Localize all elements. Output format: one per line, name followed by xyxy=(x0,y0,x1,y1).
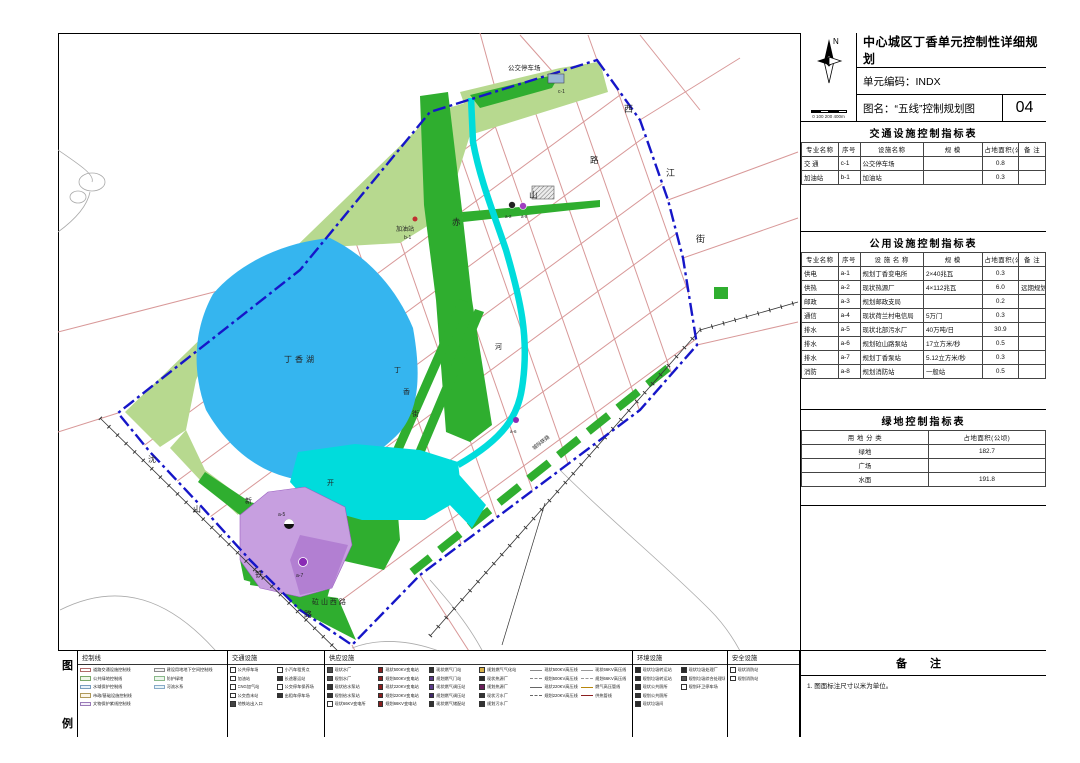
legend-item: 规划500KV变电站 xyxy=(378,676,427,682)
table-header-cell: 序号 xyxy=(838,143,860,157)
legend-item: 规划垃圾综合处理场 xyxy=(681,676,725,682)
legend-facility-icon xyxy=(327,676,333,682)
legend-item-label: 规划消防站 xyxy=(738,676,759,682)
table-header-cell: 设施名称 xyxy=(860,143,923,157)
legend-item-label: 现状66KV变电所 xyxy=(335,701,366,707)
remarks-section: 备 注 1. 图面标注尺寸以米为单位。 xyxy=(801,651,1046,737)
legend-item: 现状燃气储配站 xyxy=(429,701,478,707)
legend-line-icon xyxy=(530,670,542,671)
table-cell: 0.8 xyxy=(982,157,1019,171)
table-cell: 现状荷兰村电信局 xyxy=(860,309,923,323)
table-cell xyxy=(1019,323,1046,337)
table-row: 供热a-2现状热源厂4×112兆瓦6.0远期规划保留 xyxy=(802,281,1046,295)
table-row: 水面191.8 xyxy=(802,473,1046,487)
legend-facility-icon xyxy=(230,676,236,682)
table-header-cell: 序号 xyxy=(838,253,860,267)
table-cell xyxy=(1019,337,1046,351)
table-cell: 加油站 xyxy=(860,171,923,185)
table-cell: 规划消防站 xyxy=(860,365,923,379)
legend-item: 公交首末站 xyxy=(230,693,275,699)
table-cell: 邮政 xyxy=(802,295,839,309)
traffic-table: 专业名称序号设施名称规 模占地面积(公顷)备 注 交 通c-1公交停车场0.8加… xyxy=(801,142,1046,185)
legend-facility-icon xyxy=(327,693,333,699)
green-table-section: 绿地控制指标表 用 地 分 类占地面积(公顷) 绿地182.7广场水面191.8 xyxy=(801,410,1046,506)
panel-spacer xyxy=(801,506,1046,651)
table-row: 排水a-7规划丁香泵站5.12立方米/秒0.3 xyxy=(802,351,1046,365)
legend-facility-icon xyxy=(230,667,236,673)
unit-code: 单元编码：INDX xyxy=(863,74,941,89)
public-table-title: 公用设施控制指标表 xyxy=(801,232,1046,252)
legend-item-label: 现状燃气储配站 xyxy=(436,701,465,707)
table-cell: 规划丁香泵站 xyxy=(860,351,923,365)
railway-label: 铁 xyxy=(255,569,263,579)
legend-item-label: 现状500KV变电站 xyxy=(385,667,419,673)
table-cell: 30.9 xyxy=(982,323,1019,337)
table-cell: a-5 xyxy=(838,323,860,337)
table-cell: 0.2 xyxy=(982,295,1019,309)
map-label: a-5 xyxy=(278,512,285,518)
table-cell: 0.3 xyxy=(982,267,1019,281)
table-header-cell: 备 注 xyxy=(1019,143,1046,157)
legend-line-icon xyxy=(581,687,593,688)
table-cell: 182.7 xyxy=(928,445,1045,459)
legend-item: CNG加气站 xyxy=(230,684,275,690)
table-cell: 现状北部污水厂 xyxy=(860,323,923,337)
table-cell xyxy=(1019,351,1046,365)
table-cell xyxy=(1019,267,1046,281)
legend-section: 供应设施现状水厂规划水厂现状给水泵站规划给水泵站现状66KV变电所现状500KV… xyxy=(325,651,633,737)
legend-facility-icon xyxy=(479,684,485,690)
table-cell: 供电 xyxy=(802,267,839,281)
legend-item: 现状燃气调压站 xyxy=(429,684,478,690)
legend-item: 规划220KV高压线 xyxy=(530,693,579,699)
legend-item: 地铁站出入口 xyxy=(230,701,275,707)
table-cell: 0.3 xyxy=(982,171,1019,185)
bus-depot-icon xyxy=(548,74,564,83)
table-header-cell: 用 地 分 类 xyxy=(802,431,929,445)
table-cell: 规划砬山路泵站 xyxy=(860,337,923,351)
table-cell: 排水 xyxy=(802,337,839,351)
legend-section: 安全设施现状消防站规划消防站 xyxy=(728,651,800,737)
legend-item-label: 加油站 xyxy=(238,676,251,682)
table-cell: 5万门 xyxy=(923,309,982,323)
title-and-tables-panel: N 0 100 200 400m 中心城区丁香单元控制性详细规划 单元编码：IN… xyxy=(800,33,1046,737)
legend-line-icon xyxy=(581,678,593,679)
table-header-cell: 占地面积(公顷) xyxy=(928,431,1045,445)
table-cell: 6.0 xyxy=(982,281,1019,295)
river-label: 新 xyxy=(245,496,252,505)
legend-facility-icon xyxy=(378,667,384,673)
table-cell: 4×112兆瓦 xyxy=(923,281,982,295)
legend-item-label: 供热管线 xyxy=(595,693,612,699)
legend-item: 规划水厂 xyxy=(327,676,376,682)
table-header-cell: 设 施 名 称 xyxy=(860,253,923,267)
legend-item: 小汽车租赁点 xyxy=(277,667,322,673)
legend-item-label: 现状水厂 xyxy=(335,667,352,673)
legend-item: 现状消防站 xyxy=(730,667,797,673)
legend-item-label: 现状220KV高压线 xyxy=(544,684,578,690)
legend-item: 规划500KV高压线 xyxy=(530,676,579,682)
legend-facility-icon xyxy=(277,693,283,699)
street-label: 砬 山 西 路 xyxy=(312,597,346,606)
table-header-cell: 规 模 xyxy=(923,143,982,157)
table-cell: a-2 xyxy=(838,281,860,295)
table-cell: 2×40兆瓦 xyxy=(923,267,982,281)
street-label: 街 xyxy=(412,409,419,418)
legend-facility-icon xyxy=(479,701,485,707)
legend-item-label: 现状污水厂 xyxy=(487,693,508,699)
legend-facility-icon xyxy=(327,684,333,690)
legend-item-label: 规划燃气气化站 xyxy=(487,667,516,673)
legend-item: 现状500KV高压线 xyxy=(530,667,579,673)
legend-item-label: 规划公共厕所 xyxy=(643,693,668,699)
title-block: N 0 100 200 400m 中心城区丁香单元控制性详细规划 单元编码：IN… xyxy=(801,33,1046,122)
street-label: 西 xyxy=(624,104,633,114)
table-cell: c-1 xyxy=(838,157,860,171)
legend-item-label: 现状500KV高压线 xyxy=(544,667,578,673)
legend-swatch-icon xyxy=(80,693,91,698)
table-header-cell: 规 模 xyxy=(923,253,982,267)
table-cell: 0.5 xyxy=(982,365,1019,379)
legend-item-label: 现状公共厕所 xyxy=(643,684,668,690)
legend-line-icon xyxy=(530,687,542,688)
legend-item-label: 现状给水泵站 xyxy=(335,684,360,690)
table-row: 邮政a-3规划邮政支局0.2 xyxy=(802,295,1046,309)
table-header-cell: 专业名称 xyxy=(802,253,839,267)
railway-label: 城际铁路 xyxy=(531,434,551,452)
legend-item-label: 规划500KV变电站 xyxy=(385,676,419,682)
legend-item-label: 规划66KV高压线 xyxy=(595,676,626,682)
sewage-plant-zone xyxy=(240,487,352,597)
legend-facility-icon xyxy=(378,693,384,699)
legend-item-label: 公共停车场 xyxy=(238,667,259,673)
legend-item-label: 规划220KV变电站 xyxy=(385,693,419,699)
table-cell: a-1 xyxy=(838,267,860,281)
legend-tag-top: 图 xyxy=(62,657,73,673)
legend-item-label: 燃气高压管线 xyxy=(595,684,620,690)
table-cell: 191.8 xyxy=(928,473,1045,487)
scale-bar: 0 100 200 400m xyxy=(811,110,847,119)
table-cell: 一般站 xyxy=(923,365,982,379)
street-label: 香 xyxy=(403,387,410,396)
legend-line-icon xyxy=(530,678,542,679)
svg-text:N: N xyxy=(833,37,839,46)
legend-facility-icon xyxy=(730,667,736,673)
legend-swatch-icon xyxy=(80,676,91,681)
legend-item-label: 公共绿地控制线 xyxy=(93,676,122,682)
table-header-cell: 备 注 xyxy=(1019,253,1046,267)
legend-section-title: 控制线 xyxy=(78,651,227,665)
legend-item: 现状热源厂 xyxy=(479,676,528,682)
legend-facility-icon xyxy=(635,693,641,699)
legend-facility-icon xyxy=(277,676,283,682)
legend-item: 水域保护控制线 xyxy=(80,684,152,690)
legend-item: 现状给水泵站 xyxy=(327,684,376,690)
table-cell: 5.12立方米/秒 xyxy=(923,351,982,365)
legend-item: 规划220KV变电站 xyxy=(378,693,427,699)
table-cell xyxy=(1019,295,1046,309)
legend-item-label: 防护绿地 xyxy=(167,676,184,682)
legend-item: 规划燃气气化站 xyxy=(479,667,528,673)
table-row: 加油站b-1加油站0.3 xyxy=(802,171,1046,185)
legend-item: 河流水系 xyxy=(154,684,226,690)
legend-swatch-icon xyxy=(80,668,91,673)
green-space-table: 用 地 分 类占地面积(公顷) 绿地182.7广场水面191.8 xyxy=(801,430,1046,487)
legend-item-label: 水域保护控制线 xyxy=(93,684,122,690)
plan-sheet: 公交停车场 c-1 西 江 街 路 山 赤 加油站 b-1 a-2 a-8 丁香… xyxy=(0,0,1080,763)
lake-label: 丁香湖 xyxy=(284,354,317,364)
railway-label: 路 xyxy=(304,609,312,619)
legend-facility-icon xyxy=(429,693,435,699)
map-label: 公交停车场 xyxy=(508,63,541,72)
table-header-cell: 专业名称 xyxy=(802,143,839,157)
legend-item: 现状220KV变电站 xyxy=(378,684,427,690)
table-cell xyxy=(1019,171,1046,185)
table-cell: 加油站 xyxy=(802,171,839,185)
legend-facility-icon xyxy=(635,667,641,673)
legend-facility-icon xyxy=(635,701,641,707)
legend-item: 规划垃圾转运站 xyxy=(635,676,679,682)
legend-facility-icon xyxy=(479,676,485,682)
table-row: 交 通c-1公交停车场0.8 xyxy=(802,157,1046,171)
legend-item-label: 规划燃气调压站 xyxy=(436,693,465,699)
legend-item: 市政/基础设施控制线 xyxy=(80,693,152,699)
legend-item: 道路交通设施控制线 xyxy=(80,667,152,673)
scale-label: 0 100 200 400m xyxy=(812,114,845,119)
legend-facility-icon xyxy=(479,693,485,699)
legend-item: 规划污水厂 xyxy=(479,701,528,707)
legend-facility-icon xyxy=(681,667,687,673)
table-row: 消防a-8规划消防站一般站0.5 xyxy=(802,365,1046,379)
table-row: 排水a-5现状北部污水厂40万吨/日30.9 xyxy=(802,323,1046,337)
legend-item: 长途客运站 xyxy=(277,676,322,682)
legend-facility-icon xyxy=(230,701,236,707)
legend-item: 现状66KV变电所 xyxy=(327,701,376,707)
legend-item: 供热管线 xyxy=(581,693,630,699)
legend-item-label: 规划环卫停车场 xyxy=(689,684,718,690)
legend-item: 现状燃气门站 xyxy=(429,667,478,673)
legend-facility-icon xyxy=(681,684,687,690)
railway-label: 山 xyxy=(193,504,201,514)
legend-section-title: 供应设施 xyxy=(325,651,632,665)
map-label: a-6 xyxy=(510,429,517,434)
legend-item-label: 建设用地地下空间控制线 xyxy=(167,667,213,673)
table-cell: 规划邮政支局 xyxy=(860,295,923,309)
legend-item: 规划消防站 xyxy=(730,676,797,682)
legend-swatch-icon xyxy=(80,685,91,690)
table-cell: 40万吨/日 xyxy=(923,323,982,337)
legend-item: 规划燃气门站 xyxy=(429,676,478,682)
table-row: 广场 xyxy=(802,459,1046,473)
north-arrow-cell: N 0 100 200 400m xyxy=(801,33,857,121)
table-cell xyxy=(1019,365,1046,379)
green-table-title: 绿地控制指标表 xyxy=(801,410,1046,430)
marker-a7-icon xyxy=(299,558,308,567)
legend-facility-icon xyxy=(681,676,687,682)
legend-swatch-icon xyxy=(154,676,165,681)
legend-facility-icon xyxy=(230,684,236,690)
table-cell: a-6 xyxy=(838,337,860,351)
table-cell: 规划丁香变电所 xyxy=(860,267,923,281)
map-label: c-1 xyxy=(558,89,565,95)
map-label: b-1 xyxy=(404,235,411,241)
public-table-section: 公用设施控制指标表 专业名称序号设 施 名 称规 模占地面积(公顷)备 注 供电… xyxy=(801,232,1046,410)
map-label: a-8 xyxy=(521,214,528,219)
legend-item-label: 地铁站出入口 xyxy=(238,701,263,707)
legend-item: 规划燃气调压站 xyxy=(429,693,478,699)
traffic-table-title: 交通设施控制指标表 xyxy=(801,122,1046,142)
legend-line-icon xyxy=(530,695,542,696)
legend-facility-icon xyxy=(429,684,435,690)
legend-item-label: 现状垃圾间 xyxy=(643,701,664,707)
table-cell: 消防 xyxy=(802,365,839,379)
legend-section-title: 安全设施 xyxy=(728,651,799,665)
table-cell: 广场 xyxy=(802,459,929,473)
table-cell: 17立方米/秒 xyxy=(923,337,982,351)
legend-swatch-icon xyxy=(80,702,91,707)
table-cell: a-3 xyxy=(838,295,860,309)
legend-facility-icon xyxy=(277,684,283,690)
table-cell: a-7 xyxy=(838,351,860,365)
remarks-title: 备 注 xyxy=(801,651,1046,676)
legend-facility-icon xyxy=(479,667,485,673)
table-cell: 0.5 xyxy=(982,337,1019,351)
legend-facility-icon xyxy=(327,701,333,707)
north-arrow-icon: N xyxy=(811,35,847,87)
table-cell xyxy=(1019,157,1046,171)
legend-item: 加油站 xyxy=(230,676,275,682)
legend-item: 现状垃圾处理厂 xyxy=(681,667,725,673)
legend-item-label: 现状燃气调压站 xyxy=(436,684,465,690)
legend-item-label: 规划热源厂 xyxy=(487,684,508,690)
legend-item-label: 规划66KV变电站 xyxy=(385,701,416,707)
legend-item-label: 道路交通设施控制线 xyxy=(93,667,131,673)
legend-facility-icon xyxy=(635,676,641,682)
legend-section: 环境设施现状垃圾转运站规划垃圾转运站现状公共厕所规划公共厕所现状垃圾间现状垃圾处… xyxy=(633,651,728,737)
table-row: 绿地182.7 xyxy=(802,445,1046,459)
table-cell: 公交停车场 xyxy=(860,157,923,171)
legend-item: 规划热源厂 xyxy=(479,684,528,690)
legend-item: 公共绿地控制线 xyxy=(80,676,152,682)
legend-swatch-icon xyxy=(154,668,165,673)
sheet-title: 中心城区丁香单元控制性详细规划 xyxy=(863,33,1040,67)
legend-facility-icon xyxy=(429,701,435,707)
marker-b1-icon xyxy=(413,217,418,222)
legend-item-label: 规划220KV高压线 xyxy=(544,693,578,699)
legend-facility-icon xyxy=(429,676,435,682)
table-cell: 现状热源厂 xyxy=(860,281,923,295)
remarks-note: 1. 图面标注尺寸以米为单位。 xyxy=(801,676,1046,694)
railway-label: 沈 xyxy=(148,454,156,464)
legend-item-label: 文物保护紫线控制线 xyxy=(93,701,131,707)
legend-facility-icon xyxy=(327,667,333,673)
legend-item-label: 现状66KV高压线 xyxy=(595,667,626,673)
table-cell xyxy=(923,295,982,309)
table-cell: 绿地 xyxy=(802,445,929,459)
legend-item: 现状500KV变电站 xyxy=(378,667,427,673)
legend-item: 现状公共厕所 xyxy=(635,684,679,690)
marker-a2-icon xyxy=(509,202,516,209)
legend-item-label: 公交停车保养场 xyxy=(285,684,314,690)
legend-item: 现状水厂 xyxy=(327,667,376,673)
legend-tag: 图 例 xyxy=(58,651,78,737)
table-cell: b-1 xyxy=(838,171,860,185)
legend-item-label: 市政/基础设施控制线 xyxy=(93,693,132,699)
legend-line-icon xyxy=(581,670,593,671)
river-label: 开 xyxy=(327,479,334,487)
street-label: 山 xyxy=(529,190,538,200)
legend-item-label: 河流水系 xyxy=(167,684,184,690)
street-label: 丁 xyxy=(394,366,401,374)
legend-item-label: 规划水厂 xyxy=(335,676,352,682)
map-label: a-7 xyxy=(296,573,303,579)
table-cell: 水面 xyxy=(802,473,929,487)
legend-facility-icon xyxy=(378,684,384,690)
planning-map: 公交停车场 c-1 西 江 街 路 山 赤 加油站 b-1 a-2 a-8 丁香… xyxy=(58,33,800,650)
map-label: 加油站 xyxy=(396,225,414,233)
legend-facility-icon xyxy=(635,684,641,690)
legend-item-label: 规划给水泵站 xyxy=(335,693,360,699)
legend-item-label: 小汽车租赁点 xyxy=(285,667,310,673)
table-header-cell: 占地面积(公顷) xyxy=(982,143,1019,157)
table-cell xyxy=(1019,309,1046,323)
legend-item: 现状66KV高压线 xyxy=(581,667,630,673)
legend-strip: 图 例 控制线道路交通设施控制线公共绿地控制线水域保护控制线市政/基础设施控制线… xyxy=(58,650,800,737)
legend-section-title: 交通设施 xyxy=(228,651,324,665)
table-cell: 0.3 xyxy=(982,309,1019,323)
table-row: 排水a-6规划砬山路泵站17立方米/秒0.5 xyxy=(802,337,1046,351)
legend-item-label: 规划垃圾转运站 xyxy=(643,676,672,682)
legend-section-title: 环境设施 xyxy=(633,651,727,665)
map-label: a-2 xyxy=(505,214,512,219)
legend-item: 公交停车保养场 xyxy=(277,684,322,690)
legend-item-label: 现状燃气门站 xyxy=(436,667,461,673)
legend-facility-icon xyxy=(429,667,435,673)
legend-swatch-icon xyxy=(154,685,165,690)
table-row: 通信a-4现状荷兰村电信局5万门0.3 xyxy=(802,309,1046,323)
legend-item: 现状垃圾间 xyxy=(635,701,679,707)
legend-section: 控制线道路交通设施控制线公共绿地控制线水域保护控制线市政/基础设施控制线文物保护… xyxy=(78,651,228,737)
legend-item-label: 规划燃气门站 xyxy=(436,676,461,682)
street-label: 路 xyxy=(590,155,599,165)
legend-item: 出租车停车场 xyxy=(277,693,322,699)
legend-item: 规划给水泵站 xyxy=(327,693,376,699)
table-cell xyxy=(928,459,1045,473)
table-header-cell: 占地面积(公顷) xyxy=(982,253,1019,267)
river-label: 河 xyxy=(495,343,502,351)
traffic-table-section: 交通设施控制指标表 专业名称序号设施名称规 模占地面积(公顷)备 注 交 通c-… xyxy=(801,122,1046,232)
legend-item: 规划环卫停车场 xyxy=(681,684,725,690)
legend-item-label: 出租车停车场 xyxy=(285,693,310,699)
table-cell: 排水 xyxy=(802,323,839,337)
legend-item-label: 规划垃圾综合处理场 xyxy=(689,676,726,682)
legend-item: 规划公共厕所 xyxy=(635,693,679,699)
street-label: 赤 xyxy=(452,217,461,227)
street-label: 街 xyxy=(696,233,705,244)
table-cell: 供热 xyxy=(802,281,839,295)
legend-facility-icon xyxy=(378,676,384,682)
legend-item: 建设用地地下空间控制线 xyxy=(154,667,226,673)
legend-tag-bottom: 例 xyxy=(62,715,73,731)
legend-item: 燃气高压管线 xyxy=(581,684,630,690)
legend-item-label: 规划500KV高压线 xyxy=(544,676,578,682)
legend-item-label: 长途客运站 xyxy=(285,676,306,682)
legend-section: 交通设施公共停车场加油站CNG加气站公交首末站地铁站出入口小汽车租赁点长途客运站… xyxy=(228,651,325,737)
legend-facility-icon xyxy=(230,693,236,699)
legend-item: 规划66KV高压线 xyxy=(581,676,630,682)
table-cell: 0.3 xyxy=(982,351,1019,365)
marker-a6-icon xyxy=(513,417,519,423)
